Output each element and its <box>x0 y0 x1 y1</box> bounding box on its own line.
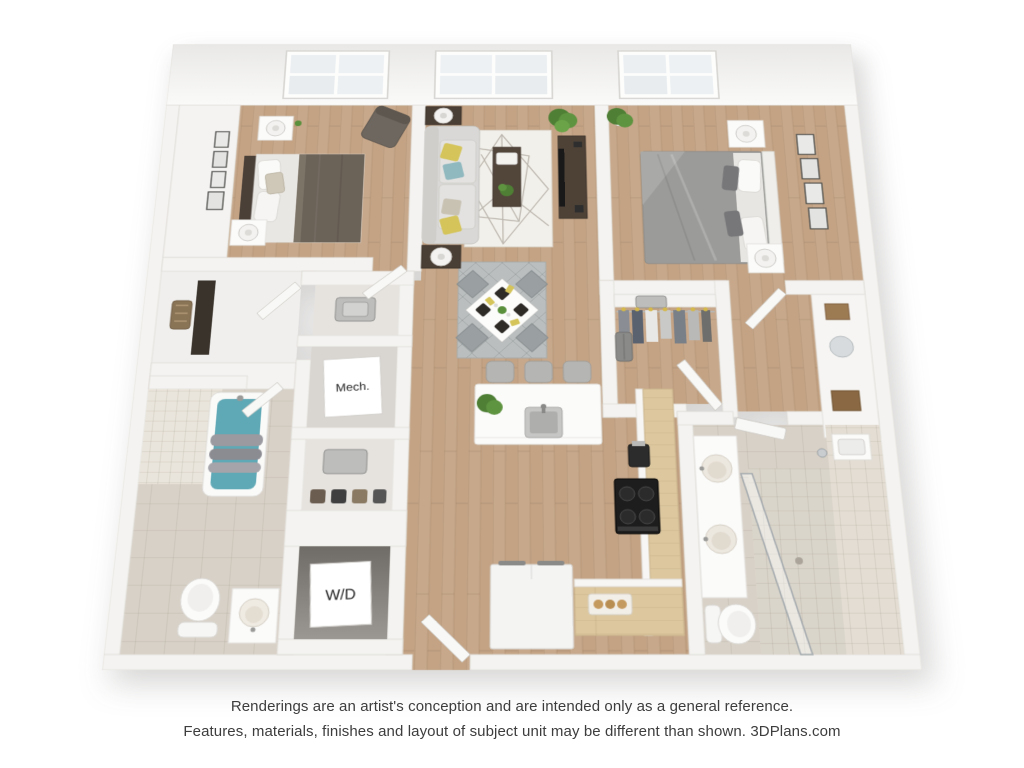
bedroom1-window <box>283 51 389 98</box>
mech-unit: Mech. <box>323 356 382 417</box>
washer-dryer-unit: W/D <box>310 561 371 627</box>
shower-head <box>817 449 827 458</box>
caption-line-2: Features, materials, finishes and layout… <box>0 721 1024 742</box>
disclaimer: Renderings are an artist's conception an… <box>0 696 1024 746</box>
nightstand-1b <box>230 220 267 245</box>
column-bottom-wall <box>277 639 403 654</box>
bottom-wall-left <box>102 655 412 670</box>
tv-console <box>558 136 587 218</box>
coffee-maker <box>628 441 650 467</box>
column-shelf-wall-1 <box>297 335 412 346</box>
wood-box-1 <box>825 304 850 320</box>
floor-plan-page: Mech. W/D <box>0 0 1024 768</box>
floor-plan-rendering: Mech. W/D <box>102 44 922 670</box>
towel-shelf <box>832 434 872 460</box>
nightstand-2b <box>747 244 785 273</box>
vanity-1 <box>228 588 279 643</box>
metal-box-2 <box>323 450 368 474</box>
metal-box-3 <box>636 296 667 308</box>
windows <box>283 51 719 98</box>
toilet-2 <box>704 604 757 644</box>
coffee-table <box>493 147 521 206</box>
refrigerator <box>490 561 574 649</box>
bread-tray <box>588 594 632 615</box>
wood-box-2 <box>831 391 861 411</box>
bedroom2-south-wall-b <box>785 280 865 294</box>
bedroom1-south-wall <box>162 257 373 271</box>
dining-area <box>456 270 548 351</box>
side-table-a <box>425 107 461 125</box>
sofa <box>422 126 480 244</box>
bedroom2-south-wall-a <box>599 280 727 294</box>
caption-line-1: Renderings are an artist's conception an… <box>0 696 1024 717</box>
kitchen-counter-bottom <box>574 579 684 635</box>
nightstand-2a <box>727 121 765 148</box>
mech-label: Mech. <box>336 379 370 394</box>
stove <box>614 479 660 534</box>
column-shelf-wall-3 <box>284 510 407 546</box>
bedroom2-window <box>618 51 719 98</box>
bar-stools <box>486 361 591 382</box>
floor-plan-svg: Mech. W/D <box>102 44 922 670</box>
kitchen-island <box>474 384 602 444</box>
storage-basket <box>170 301 193 329</box>
bottom-wall-right <box>470 655 922 670</box>
washer-dryer-label: W/D <box>325 586 356 604</box>
column-shelf-wall-2 <box>291 427 409 439</box>
bath1-door-wall <box>149 376 248 389</box>
living-room-window <box>435 51 553 98</box>
bath2-north-wall-a <box>677 411 734 424</box>
side-table-b <box>421 245 460 268</box>
